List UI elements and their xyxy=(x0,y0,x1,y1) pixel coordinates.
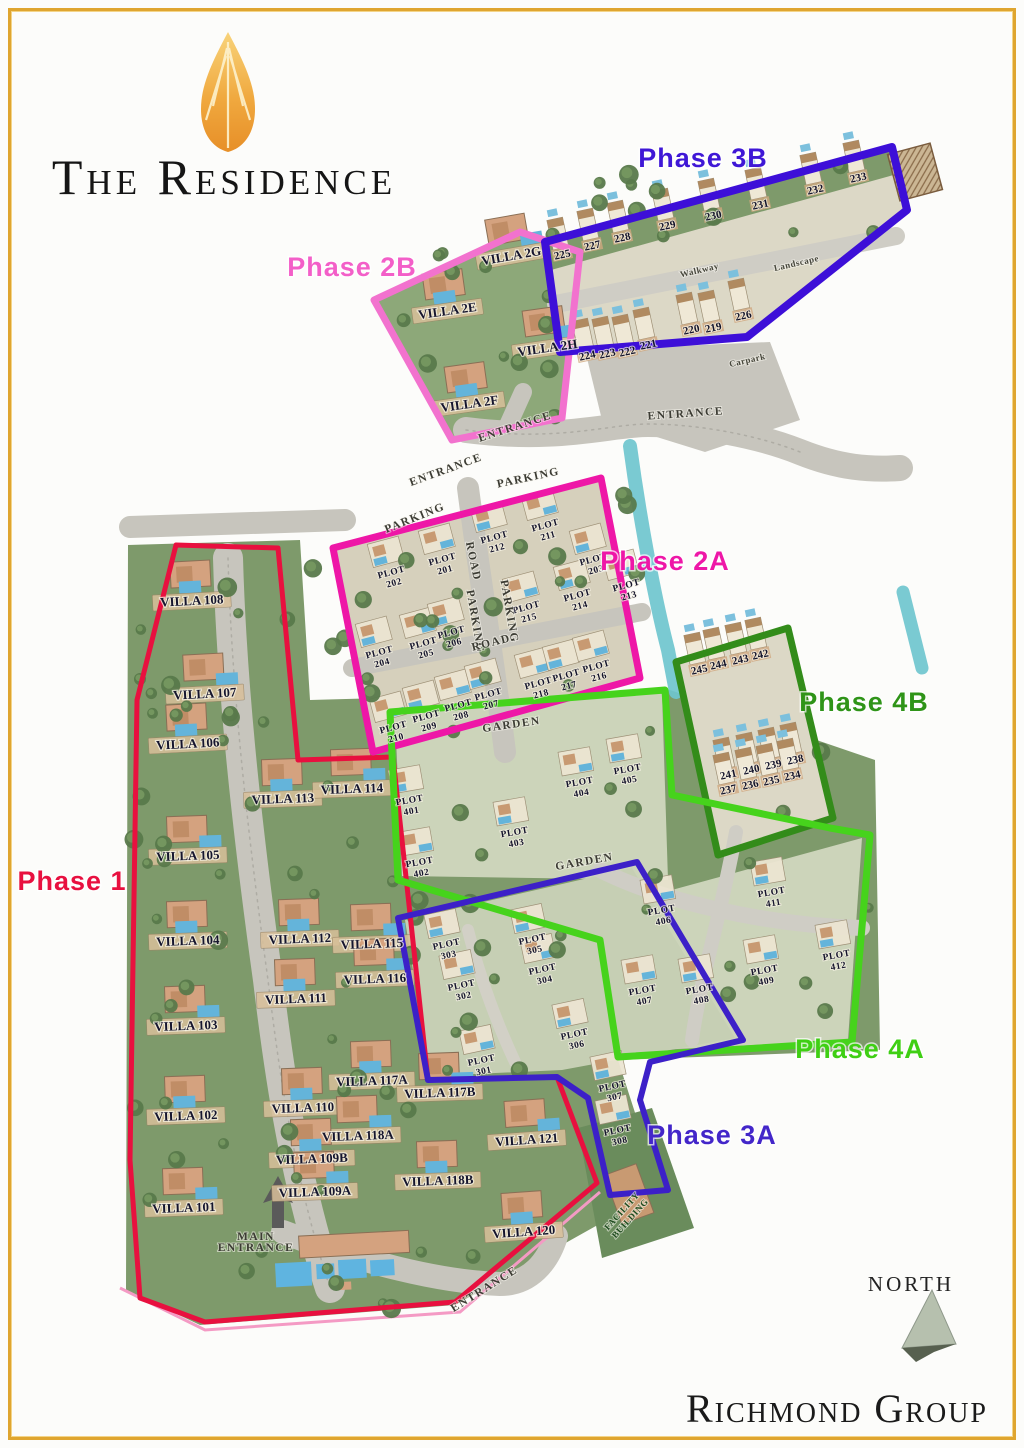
villa-label: VILLA 117A xyxy=(336,1072,409,1090)
developer-name: Richmond Group xyxy=(686,1385,988,1432)
tree xyxy=(355,591,372,608)
tree xyxy=(574,575,587,588)
tree xyxy=(142,858,153,869)
phase-label: Phase 1 xyxy=(17,866,126,896)
tree xyxy=(168,1151,185,1168)
villa-label: VILLA 103 xyxy=(154,1017,218,1034)
tree xyxy=(416,1246,427,1257)
villa-label: VILLA 102 xyxy=(154,1107,218,1124)
villa-label: VILLA 113 xyxy=(251,790,314,807)
tree xyxy=(788,227,798,237)
tree xyxy=(136,624,147,635)
tree xyxy=(604,782,617,795)
tree xyxy=(479,671,492,684)
tree xyxy=(724,961,735,972)
tree xyxy=(147,708,158,719)
tree xyxy=(291,1172,302,1183)
phase-label: Phase 3A xyxy=(647,1120,777,1150)
tree xyxy=(304,559,322,577)
tree xyxy=(645,726,655,736)
tree xyxy=(238,1263,255,1280)
villa-label: VILLA 116 xyxy=(343,970,406,987)
tree xyxy=(619,165,639,185)
villa-label: VILLA 109B xyxy=(276,1150,349,1168)
tree xyxy=(513,539,528,554)
site-map: VILLA 108VILLA 107VILLA 106VILLA 105VILL… xyxy=(0,0,1024,1448)
tree xyxy=(489,973,500,984)
tree xyxy=(164,999,177,1012)
phase-label: Phase 4B xyxy=(799,687,929,717)
tree xyxy=(233,608,243,618)
tree xyxy=(649,183,666,200)
tree xyxy=(466,1249,481,1264)
tree xyxy=(410,891,428,909)
north-label: NORTH xyxy=(868,1272,954,1297)
tree xyxy=(258,716,269,727)
plot-building xyxy=(743,935,779,964)
tree xyxy=(474,939,491,956)
villa-label: VILLA 110 xyxy=(271,1099,334,1116)
villa-label: VILLA 117B xyxy=(404,1084,476,1101)
villa-label: VILLA 105 xyxy=(156,847,220,864)
site-plan-page: The Residence xyxy=(0,0,1024,1448)
villa-label: VILLA 118A xyxy=(322,1127,395,1145)
villa-label: VILLA 115 xyxy=(340,935,403,952)
villa-label: VILLA 111 xyxy=(265,990,327,1007)
tree xyxy=(327,1034,337,1044)
tree xyxy=(451,588,463,600)
north-arrow-icon xyxy=(902,1290,956,1362)
tree xyxy=(170,708,183,721)
tree xyxy=(625,801,642,818)
tree xyxy=(460,1013,478,1031)
tree xyxy=(287,866,303,882)
villa-label: VILLA 109A xyxy=(278,1183,352,1201)
tree xyxy=(324,637,342,655)
tree xyxy=(817,1003,833,1019)
tree xyxy=(433,249,445,261)
plot-building xyxy=(493,797,529,826)
tree xyxy=(442,1065,453,1076)
tree xyxy=(744,857,756,869)
canal-right xyxy=(903,592,922,668)
tree xyxy=(549,941,566,958)
villa-label: VILLA 104 xyxy=(156,932,220,949)
tree xyxy=(152,914,163,925)
tree xyxy=(594,177,606,189)
tree xyxy=(281,1123,299,1141)
villa-label: VILLA 101 xyxy=(152,1199,216,1216)
brand-title: The Residence xyxy=(28,148,420,206)
tree xyxy=(720,986,736,1002)
villa-label: VILLA 118B xyxy=(402,1172,474,1189)
plot-building xyxy=(558,747,594,776)
tree xyxy=(452,804,469,821)
tree xyxy=(397,313,411,327)
tree xyxy=(475,848,488,861)
tree xyxy=(591,194,608,211)
tree xyxy=(555,576,565,586)
villa-label: VILLA 114 xyxy=(320,780,383,797)
tree xyxy=(322,1263,334,1275)
flame-teardrop-icon xyxy=(168,26,288,152)
tree xyxy=(451,1027,462,1038)
villa-label: VILLA 112 xyxy=(268,930,331,947)
tree xyxy=(223,706,238,721)
tree xyxy=(484,597,503,616)
tree xyxy=(799,976,812,989)
tree xyxy=(615,487,632,504)
plot-building xyxy=(815,920,851,949)
tree xyxy=(548,547,566,565)
road-label: PARKING xyxy=(496,466,561,491)
brand-logo xyxy=(168,26,288,152)
phase-label: Phase 2A xyxy=(600,546,730,576)
tree xyxy=(540,360,559,379)
plot-building xyxy=(606,734,642,763)
tree xyxy=(346,836,359,849)
tree xyxy=(419,354,437,372)
tree xyxy=(179,979,195,995)
phase-label: Phase 3B xyxy=(638,143,768,173)
phase-label: Phase 4A xyxy=(795,1034,925,1064)
tree xyxy=(218,1138,229,1149)
tree xyxy=(328,1275,344,1291)
top-left-road xyxy=(130,520,345,527)
tree xyxy=(309,889,320,900)
tree xyxy=(215,869,226,880)
tree xyxy=(499,351,510,362)
tree xyxy=(400,1102,417,1119)
plot-building xyxy=(621,955,657,984)
tree xyxy=(426,614,440,628)
phase-label: Phase 2B xyxy=(287,252,417,282)
tree xyxy=(146,688,157,699)
